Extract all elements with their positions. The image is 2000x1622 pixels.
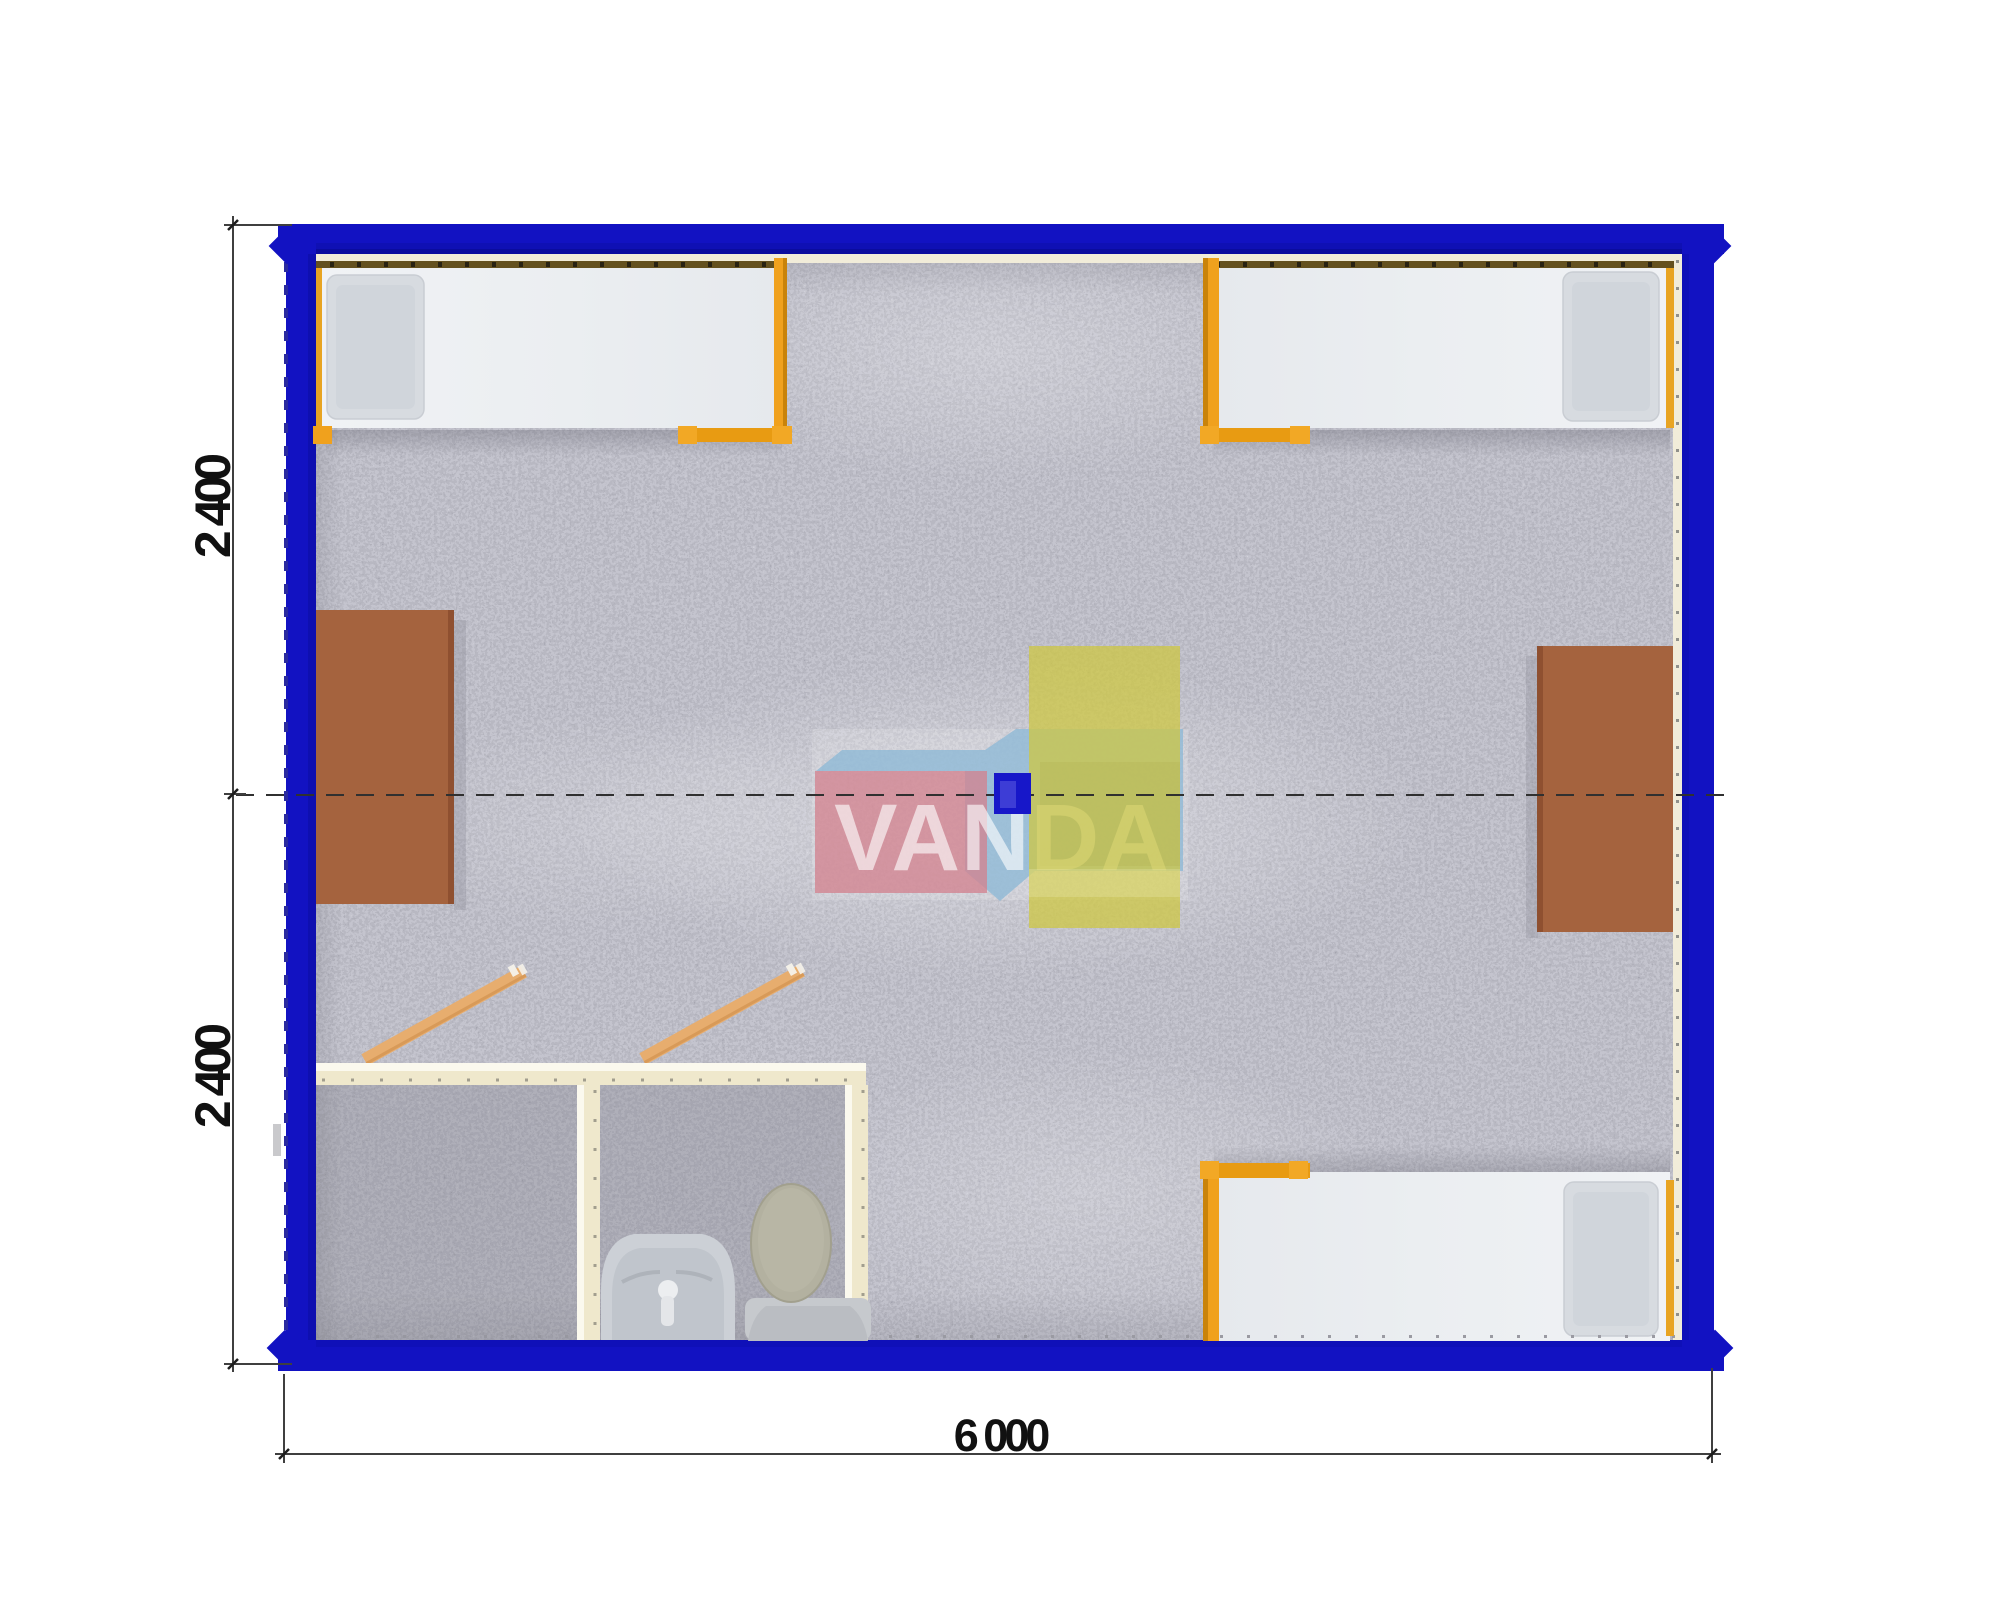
svg-text:6 000: 6 000 [954, 1410, 1050, 1461]
svg-text:2 400: 2 400 [185, 1025, 241, 1128]
svg-text:2 400: 2 400 [185, 455, 241, 558]
